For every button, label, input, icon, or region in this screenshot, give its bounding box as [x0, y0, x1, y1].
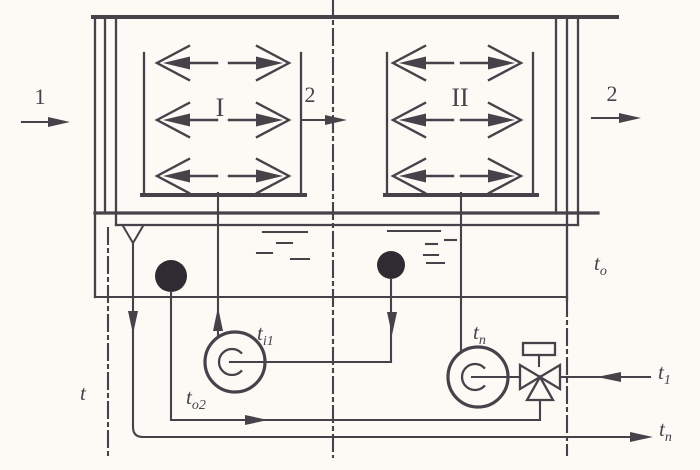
pump-2-suction-pipe [171, 292, 540, 420]
casing [93, 17, 617, 300]
label-t-boundary: t [80, 381, 87, 405]
water-level-icon [257, 231, 456, 263]
spray-nozzle-icon [461, 103, 521, 137]
pump-1-circuit [205, 193, 397, 392]
spray-nozzle-icon [229, 46, 289, 80]
label-t-pump2: tn [473, 320, 486, 348]
flow-arrow-icon [630, 432, 653, 442]
schematic-canvas: I II 1 2 2 [0, 0, 700, 470]
label-t-fresh: t1 [658, 360, 671, 388]
strainer-icon [377, 251, 405, 279]
spray-nozzle-icon [461, 159, 521, 193]
fresh-water-inlet [560, 372, 650, 382]
chamber-2: II [385, 46, 537, 195]
label-t-out: tn [659, 417, 672, 445]
funnel-v [123, 226, 143, 243]
label-t-o2: to2 [186, 385, 206, 413]
flow-arrow-icon [387, 312, 397, 335]
spray-nozzle-icon [393, 159, 453, 193]
spray-nozzle-icon [229, 159, 289, 193]
valve-bottom-port [527, 377, 553, 400]
spray-nozzle-icon [229, 103, 289, 137]
flow-arrow-icon [597, 372, 621, 382]
flow-arrow-icon [245, 415, 268, 425]
inlet-air-label: 1 [35, 84, 46, 109]
outlet-air-label: 2 [607, 81, 618, 106]
label-t-i1: ti1 [257, 321, 274, 349]
spray-nozzle-icon [157, 103, 217, 137]
spray-nozzle-icon [393, 103, 453, 137]
mid-air-label: 2 [305, 82, 316, 107]
chamber-1-label: I [216, 93, 225, 122]
spray-nozzle-icon [157, 46, 217, 80]
chamber-2-label: II [451, 83, 468, 112]
pump-1-suction-pipe [230, 279, 391, 362]
flow-arrow-icon [325, 115, 347, 125]
strainer-icon [155, 260, 187, 292]
flow-arrow-icon [213, 307, 223, 331]
spray-nozzle-icon [393, 46, 453, 80]
label-t-tank: to [594, 251, 607, 279]
flow-arrow-icon [619, 113, 641, 123]
spray-nozzle-icon [461, 46, 521, 80]
flow-arrow-icon [48, 117, 70, 127]
three-way-valve-icon [520, 343, 560, 400]
valve-actuator [523, 343, 555, 355]
centerlines [108, 0, 567, 458]
flow-arrow-icon [128, 311, 138, 334]
chamber-1: I [142, 46, 305, 195]
spray-nozzle-icon [157, 159, 217, 193]
